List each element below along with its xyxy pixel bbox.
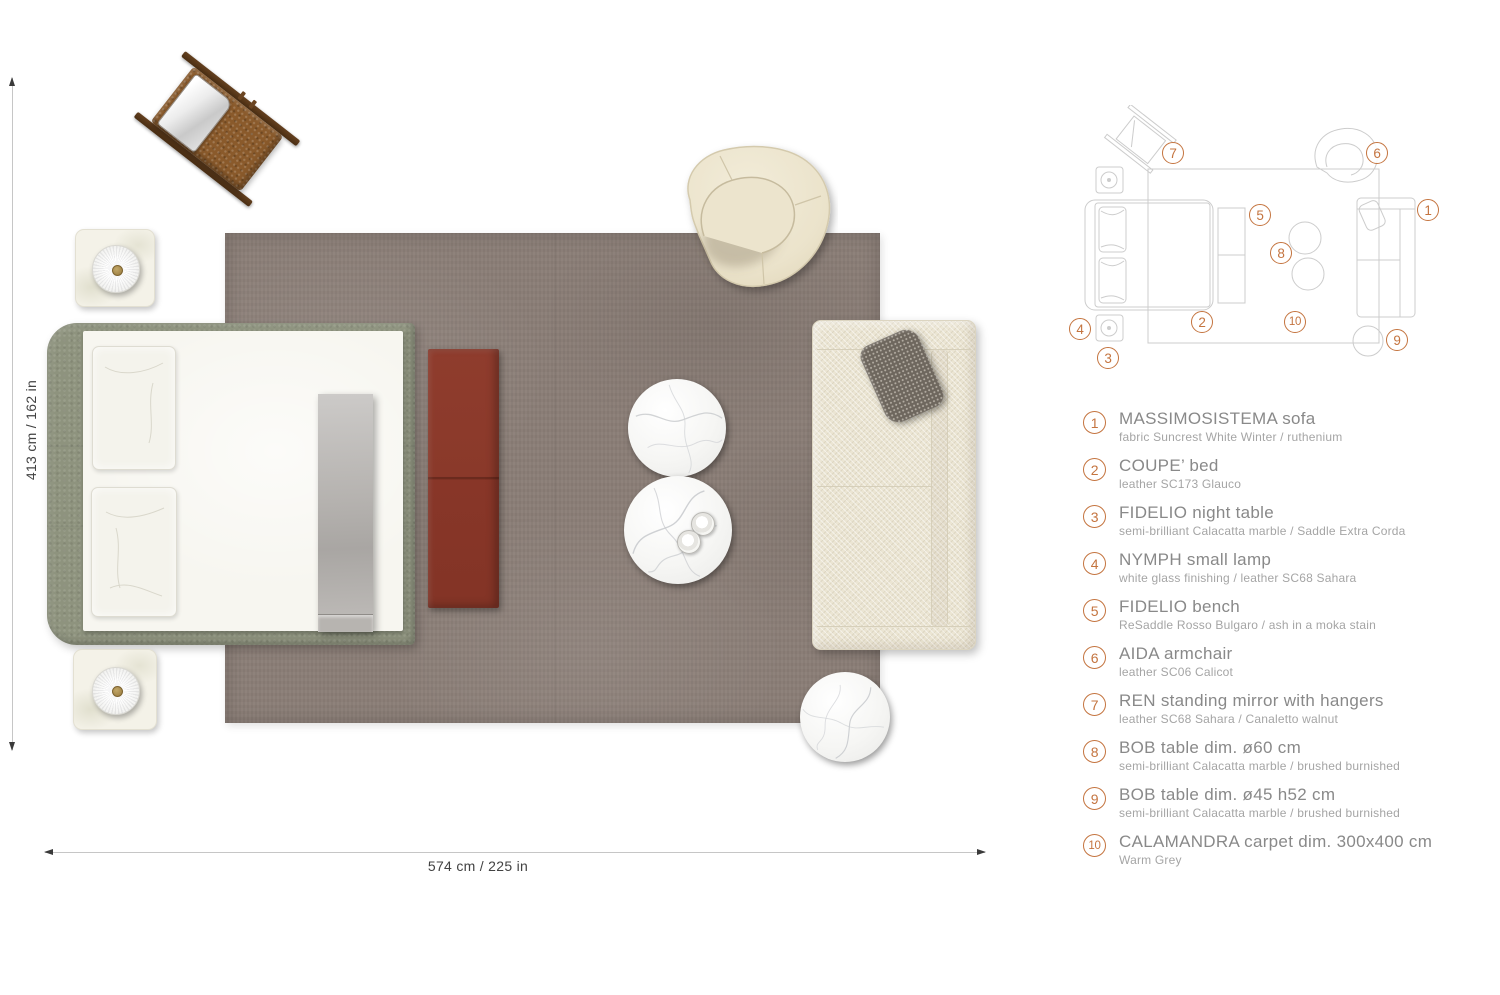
marble-veins bbox=[628, 379, 726, 477]
legend-item: 4 NYMPH small lamp white glass finishing… bbox=[1083, 551, 1483, 598]
schematic-marker-3: 3 bbox=[1097, 347, 1119, 369]
legend-item: 10 CALAMANDRA carpet dim. 300x400 cm War… bbox=[1083, 833, 1483, 880]
bob-table-60 bbox=[628, 379, 726, 477]
arrow-up-icon bbox=[9, 77, 15, 86]
sofa-seam bbox=[817, 486, 932, 487]
legend-number-badge: 2 bbox=[1083, 458, 1106, 481]
runner-end-cap bbox=[318, 614, 373, 632]
legend-item: 3 FIDELIO night table semi-brilliant Cal… bbox=[1083, 504, 1483, 551]
schematic-marker-4: 4 bbox=[1069, 318, 1091, 340]
legend-number-badge: 8 bbox=[1083, 740, 1106, 763]
legend-item-title: BOB table dim. ø45 h52 cm bbox=[1119, 786, 1400, 805]
bob-table-45 bbox=[800, 672, 890, 762]
pillow-crease-lines bbox=[92, 488, 176, 616]
legend-item-subtitle: ReSaddle Rosso Bulgaro / ash in a moka s… bbox=[1119, 618, 1376, 632]
vertical-dimension-line bbox=[12, 78, 13, 750]
legend-item: 7 REN standing mirror with hangers leath… bbox=[1083, 692, 1483, 739]
legend-item-subtitle: leather SC173 Glauco bbox=[1119, 477, 1241, 491]
legend-item-subtitle: semi-brilliant Calacatta marble / Saddle… bbox=[1119, 524, 1406, 538]
legend-number-badge: 7 bbox=[1083, 693, 1106, 716]
legend-number-badge: 10 bbox=[1083, 834, 1106, 857]
schematic-marker-1: 1 bbox=[1417, 199, 1439, 221]
legend-item-title: FIDELIO night table bbox=[1119, 504, 1406, 523]
legend-number-badge: 5 bbox=[1083, 599, 1106, 622]
legend-item-subtitle: semi-brilliant Calacatta marble / brushe… bbox=[1119, 806, 1400, 820]
legend-item: 1 MASSIMOSISTEMA sofa fabric Suncrest Wh… bbox=[1083, 410, 1483, 457]
bed-pillow bbox=[92, 346, 176, 470]
legend-item-title: MASSIMOSISTEMA sofa bbox=[1119, 410, 1342, 429]
bed-coupe bbox=[47, 323, 415, 645]
horizontal-dimension-line bbox=[45, 852, 985, 853]
legend-item: 6 AIDA armchair leather SC06 Calicot bbox=[1083, 645, 1483, 692]
legend-item-title: BOB table dim. ø60 cm bbox=[1119, 739, 1400, 758]
bob-table-60-with-cups bbox=[624, 476, 732, 584]
legend-item-title: COUPE’ bed bbox=[1119, 457, 1241, 476]
bed-metal-runner bbox=[318, 394, 373, 632]
legend-item-subtitle: semi-brilliant Calacatta marble / brushe… bbox=[1119, 759, 1400, 773]
schematic-plan: 1 2 3 4 5 6 7 8 9 10 bbox=[1065, 105, 1455, 375]
schematic-marker-2: 2 bbox=[1191, 311, 1213, 333]
legend-item: 9 BOB table dim. ø45 h52 cm semi-brillia… bbox=[1083, 786, 1483, 833]
vertical-dimension-label: 413 cm / 162 in bbox=[23, 370, 39, 490]
legend-item-subtitle: leather SC68 Sahara / Canaletto walnut bbox=[1119, 712, 1384, 726]
nymph-lamp bbox=[92, 245, 140, 293]
schematic-marker-10: 10 bbox=[1284, 311, 1306, 333]
schematic-marker-5: 5 bbox=[1249, 204, 1271, 226]
marble-veins bbox=[800, 672, 890, 762]
legend-item-subtitle: leather SC06 Calicot bbox=[1119, 665, 1233, 679]
arrow-right-icon bbox=[977, 849, 986, 855]
legend-item-title: FIDELIO bench bbox=[1119, 598, 1376, 617]
legend-item: 8 BOB table dim. ø60 cm semi-brilliant C… bbox=[1083, 739, 1483, 786]
bed-pillow bbox=[91, 487, 177, 617]
legend-item-title: NYMPH small lamp bbox=[1119, 551, 1356, 570]
legend-item-title: CALAMANDRA carpet dim. 300x400 cm bbox=[1119, 833, 1432, 852]
schematic-marker-9: 9 bbox=[1386, 329, 1408, 351]
arrow-down-icon bbox=[9, 742, 15, 751]
cup bbox=[677, 530, 701, 554]
night-table-fidelio-top bbox=[75, 229, 155, 307]
bed-duvet bbox=[83, 331, 403, 631]
sofa-massimosistema bbox=[812, 320, 976, 650]
schematic-marker-6: 6 bbox=[1366, 142, 1388, 164]
legend-number-badge: 1 bbox=[1083, 411, 1106, 434]
nymph-lamp bbox=[92, 667, 140, 715]
legend-number-badge: 9 bbox=[1083, 787, 1106, 810]
legend-item-subtitle: fabric Suncrest White Winter / ruthenium bbox=[1119, 430, 1342, 444]
sofa-seam bbox=[817, 626, 971, 627]
horizontal-dimension-label: 574 cm / 225 in bbox=[398, 858, 558, 874]
legend-item-title: AIDA armchair bbox=[1119, 645, 1233, 664]
legend-number-badge: 6 bbox=[1083, 646, 1106, 669]
legend-number-badge: 3 bbox=[1083, 505, 1106, 528]
legend-item: 5 FIDELIO bench ReSaddle Rosso Bulgaro /… bbox=[1083, 598, 1483, 645]
legend: 1 MASSIMOSISTEMA sofa fabric Suncrest Wh… bbox=[1083, 410, 1483, 880]
standing-mirror-ren bbox=[142, 56, 293, 203]
legend-item-subtitle: Warm Grey bbox=[1119, 853, 1432, 867]
bench-fidelio bbox=[428, 349, 499, 608]
schematic-marker-7: 7 bbox=[1162, 142, 1184, 164]
legend-number-badge: 4 bbox=[1083, 552, 1106, 575]
legend-item-subtitle: white glass finishing / leather SC68 Sah… bbox=[1119, 571, 1356, 585]
marble-veins bbox=[624, 476, 732, 584]
legend-item-title: REN standing mirror with hangers bbox=[1119, 692, 1384, 711]
schematic-marker-8: 8 bbox=[1270, 242, 1292, 264]
pillow-crease-lines bbox=[93, 347, 175, 469]
night-table-fidelio-bottom bbox=[73, 649, 157, 730]
arrow-left-icon bbox=[44, 849, 53, 855]
legend-item: 2 COUPE’ bed leather SC173 Glauco bbox=[1083, 457, 1483, 504]
armchair-aida bbox=[668, 138, 838, 298]
lamp-brass-finial bbox=[112, 686, 123, 697]
lamp-brass-finial bbox=[112, 265, 123, 276]
